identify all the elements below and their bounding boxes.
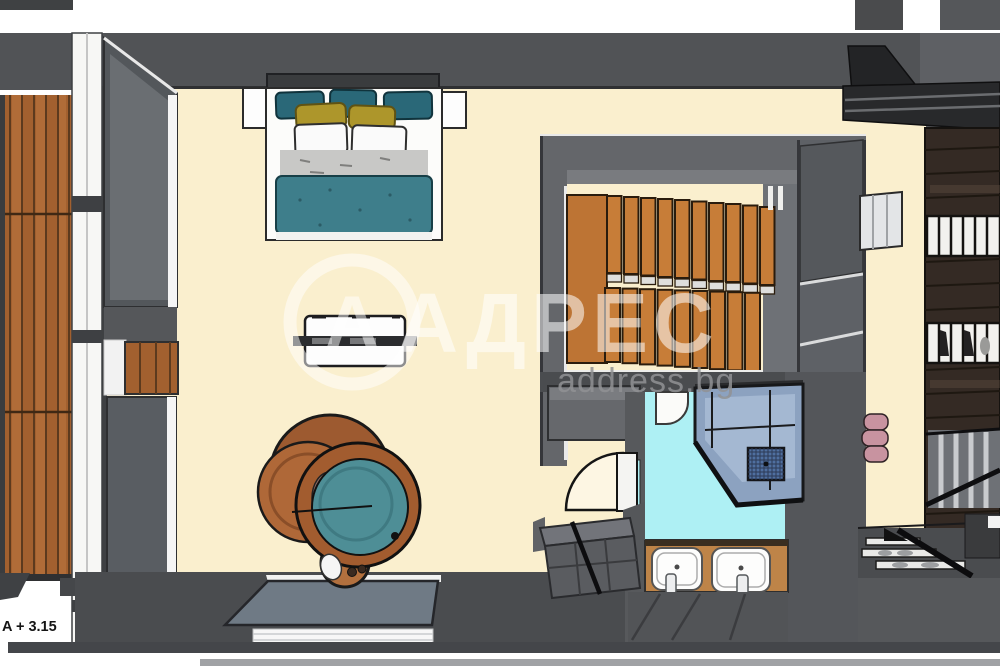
wardrobe-hanging-section xyxy=(926,429,1000,508)
window-block-gray xyxy=(104,307,177,342)
watermark-title: АДРЕС xyxy=(397,276,718,370)
wardrobe-cubbies-shoes xyxy=(927,323,1000,363)
poufs xyxy=(862,414,888,462)
watermark-logo-glyph: А xyxy=(324,279,380,367)
bed-duvet xyxy=(276,176,432,234)
double-bed xyxy=(243,74,466,240)
wood-cabinet-left xyxy=(125,342,178,394)
corner-shelf xyxy=(858,514,1000,642)
floor-top-edge xyxy=(100,86,926,89)
double-sink-vanity xyxy=(628,540,788,642)
floorplan-canvas: A + 3.15 А АДРЕС address.bg xyxy=(0,0,1000,666)
balcony-deck xyxy=(0,95,73,581)
floorplan-render: A + 3.15 А АДРЕС address.bg xyxy=(0,0,1000,666)
ac-panel xyxy=(860,192,902,250)
window-column xyxy=(72,33,102,648)
window-ledge-white xyxy=(104,340,126,395)
door-leaf xyxy=(617,453,637,511)
faucet-left xyxy=(666,574,676,594)
bed-sheet xyxy=(280,150,428,178)
watermark-domain: address.bg xyxy=(557,362,735,400)
elevation-label: A + 3.15 xyxy=(2,619,57,635)
wardrobe-cubbies-empty xyxy=(927,216,1000,256)
